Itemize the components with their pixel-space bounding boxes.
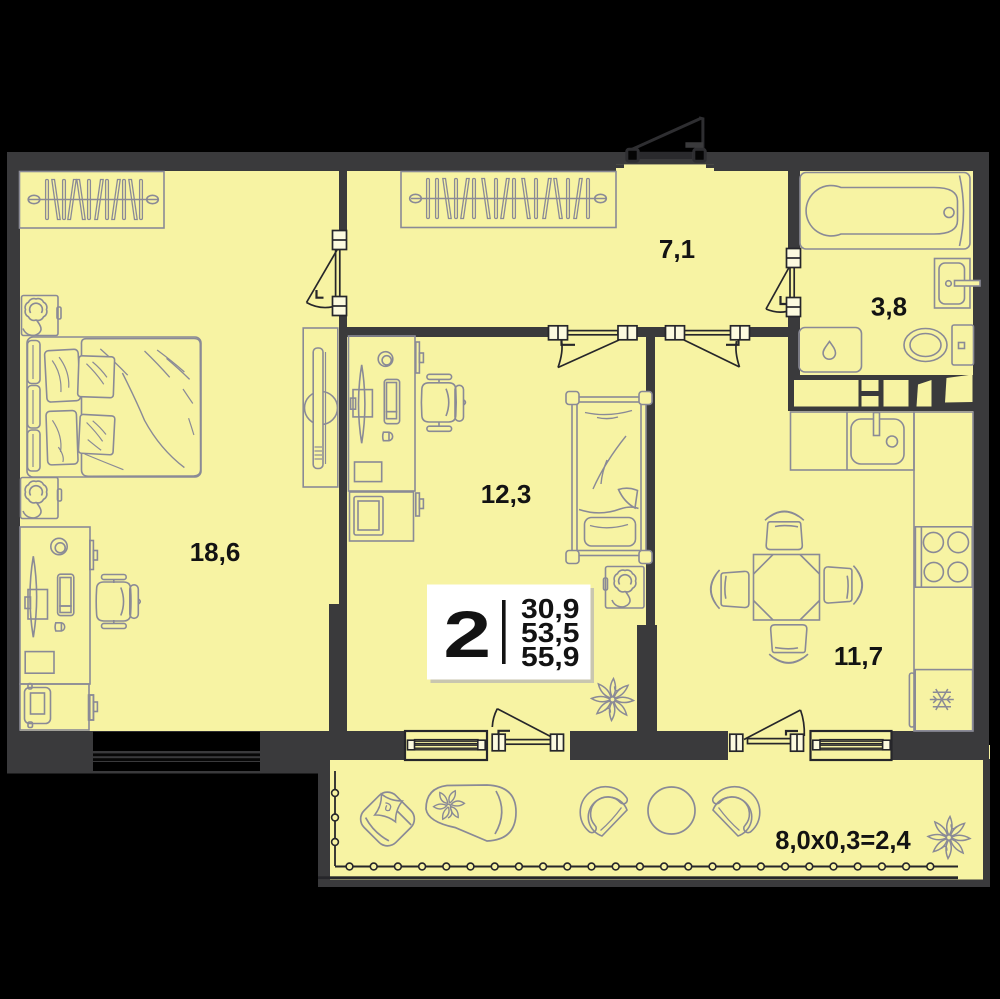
svg-text:3,8: 3,8 [871, 292, 907, 322]
svg-text:11,7: 11,7 [834, 641, 883, 671]
svg-text:18,6: 18,6 [190, 537, 241, 567]
svg-text:7,1: 7,1 [659, 234, 695, 264]
svg-text:8,0x0,3=2,4: 8,0x0,3=2,4 [775, 827, 911, 855]
svg-text:55,9: 55,9 [521, 641, 580, 672]
svg-text:12,3: 12,3 [481, 479, 532, 509]
svg-text:2: 2 [443, 598, 491, 671]
